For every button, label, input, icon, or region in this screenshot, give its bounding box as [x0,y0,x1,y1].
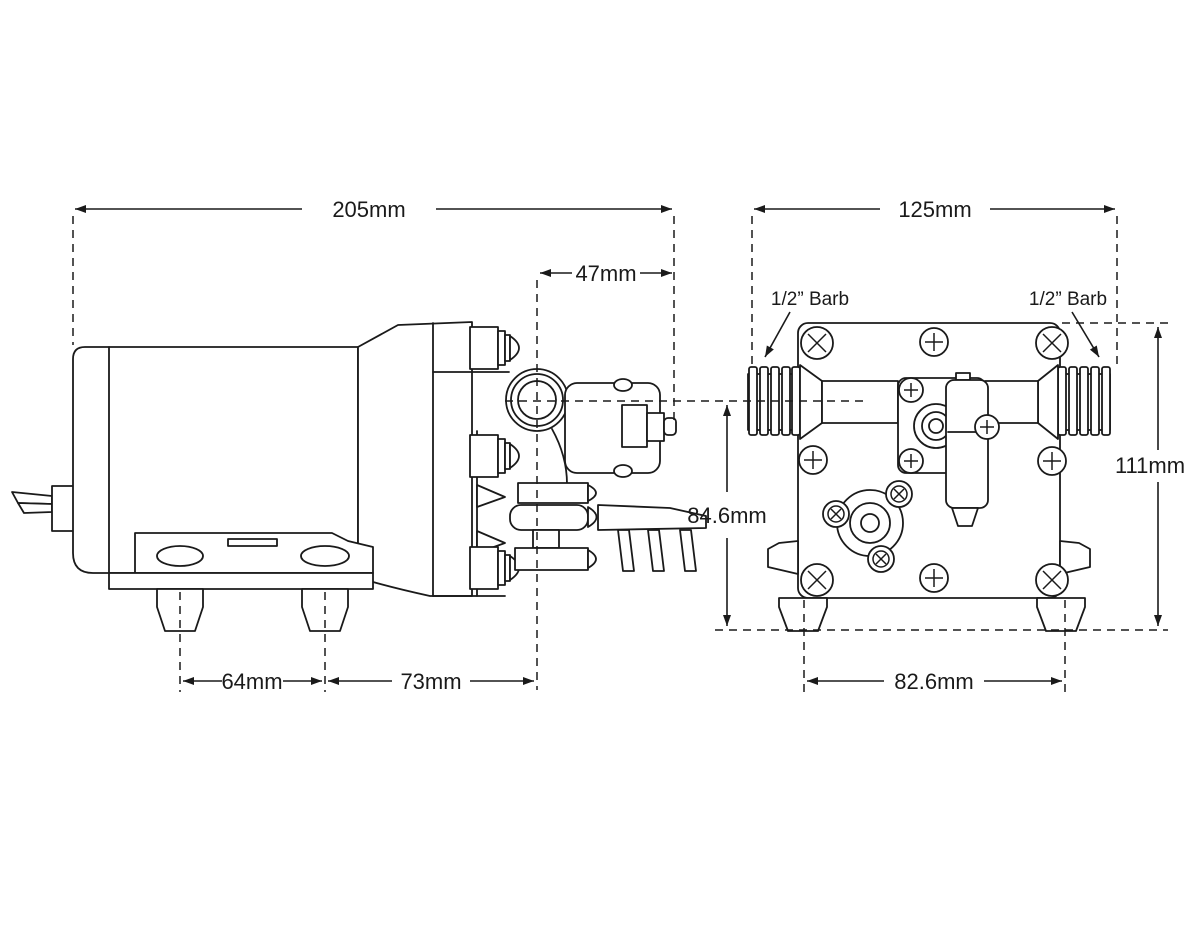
wire-leads [12,486,74,531]
dim-overall-height-label: 111mm [1115,453,1185,478]
dimension-head-length: 47mm [540,261,672,286]
port-right-label: 1/2” Barb [1029,289,1107,310]
pump-dimension-drawing: 205mm 47mm 125mm 84.6mm 111mm 64mm 73mm … [0,0,1200,950]
spade-terminal [680,530,696,571]
dimension-foot-spacing-side: 64mm [183,669,322,694]
bypass-assembly [510,483,706,571]
head-screws [470,327,519,589]
dim-foot-spacing-side-label: 64mm [221,669,282,694]
dim-overall-length-label: 205mm [332,197,405,222]
side-view-drawing [12,322,706,631]
drawing-canvas: 205mm 47mm 125mm 84.6mm 111mm 64mm 73mm … [0,0,1200,950]
dim-overall-width-label: 125mm [898,197,971,222]
pressure-switch [946,380,988,508]
mounting-base [109,533,373,631]
dimension-foot-spacing-bottom: 82.6mm [807,669,1062,694]
dim-centerline-to-base-label: 84.6mm [687,503,766,528]
port-left-label: 1/2” Barb [771,289,849,310]
dimension-overall-length: 205mm [75,197,672,222]
bottom-view-drawing [748,323,1110,631]
dimension-centerline-to-base: 84.6mm [687,405,766,626]
dimension-foot-to-port: 73mm [328,669,534,694]
dimension-overall-width: 125mm [754,197,1115,222]
dim-foot-to-port-label: 73mm [400,669,461,694]
foot-left [779,598,827,631]
spade-terminal [618,530,634,571]
dim-head-length-label: 47mm [575,261,636,286]
dim-foot-spacing-bottom-label: 82.6mm [894,669,973,694]
spade-terminal [648,530,664,571]
foot-right [1037,598,1085,631]
dimension-overall-height: 111mm [1115,327,1185,626]
pressure-switch-housing [565,379,676,477]
